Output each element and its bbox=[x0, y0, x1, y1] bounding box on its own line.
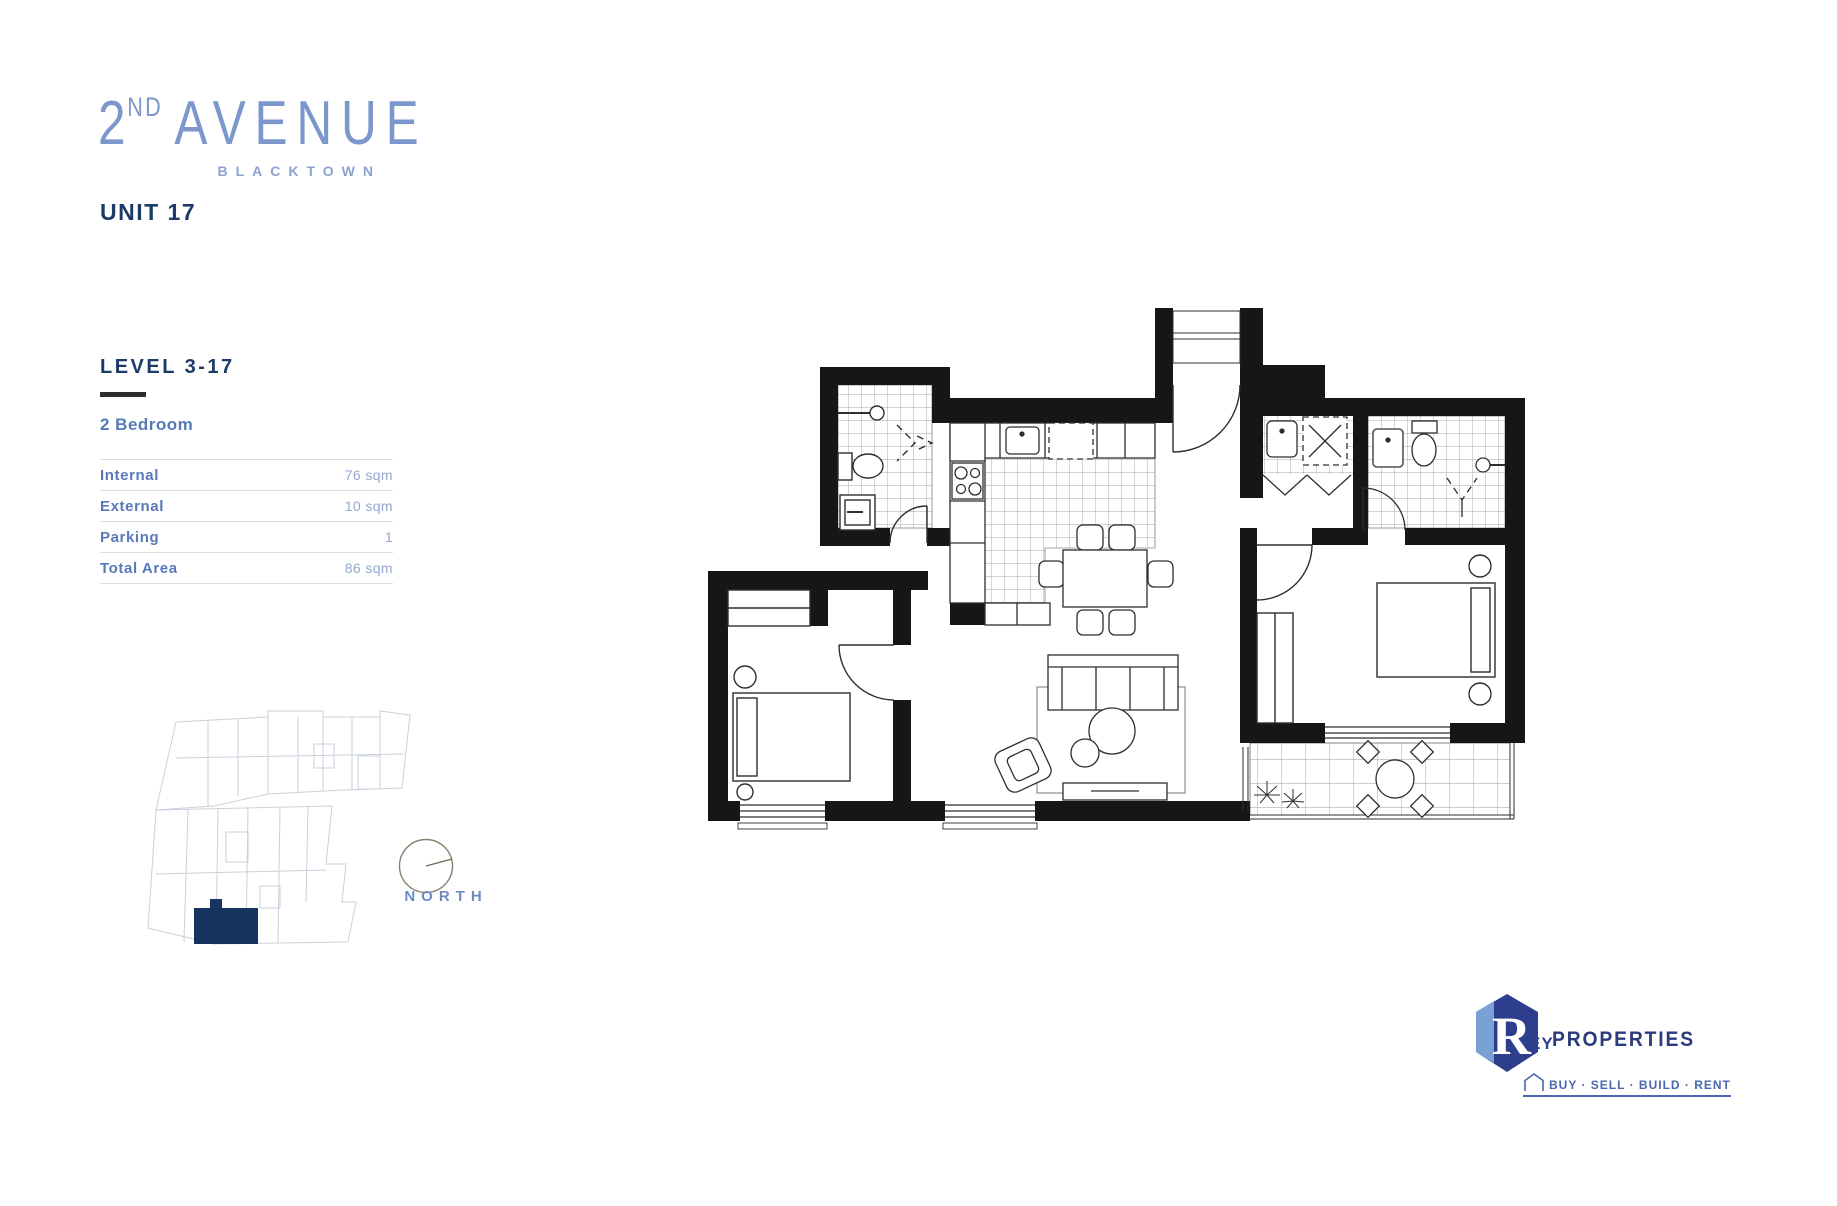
area-row-label: Internal bbox=[100, 467, 159, 484]
chair-icon bbox=[1077, 525, 1103, 550]
laundry-fixtures bbox=[1263, 417, 1351, 495]
project-logo: 2NDAVENUE bbox=[98, 88, 510, 159]
north-label: NORTH bbox=[398, 888, 494, 905]
level-heading: LEVEL 3-17 bbox=[100, 356, 235, 379]
project-logo-name: AVENUE bbox=[174, 89, 427, 158]
bedside-table-icon bbox=[737, 784, 753, 800]
agency-name-suffix: EY bbox=[1529, 1034, 1554, 1054]
area-row-value: 86 sqm bbox=[345, 560, 393, 576]
chair-icon bbox=[1148, 561, 1173, 587]
area-row-value: 10 sqm bbox=[345, 498, 393, 514]
building-key-plan-icon bbox=[118, 706, 430, 948]
agency-name: PROPERTIES bbox=[1552, 1028, 1695, 1052]
chair-icon bbox=[1109, 525, 1135, 550]
area-row-label: Total Area bbox=[100, 560, 178, 577]
heading-divider-bar bbox=[100, 392, 146, 397]
project-logo-ordinal: ND bbox=[127, 92, 163, 122]
area-row-value: 76 sqm bbox=[345, 467, 393, 483]
bedside-table-icon bbox=[1469, 683, 1491, 705]
project-logo-number: 2 bbox=[98, 89, 127, 158]
house-icon bbox=[1523, 1072, 1545, 1092]
agency-tagline-text: BUY · SELL · BUILD · RENT bbox=[1549, 1078, 1731, 1092]
highlighted-unit bbox=[194, 899, 258, 944]
chair-icon bbox=[1109, 610, 1135, 635]
agency-tagline: BUY · SELL · BUILD · RENT bbox=[1523, 1072, 1731, 1097]
svg-text:R: R bbox=[1492, 1006, 1532, 1066]
agency-logo: R EY PROPERTIES BUY · SELL · BUILD · REN… bbox=[1465, 990, 1680, 1110]
entry-door bbox=[1173, 311, 1240, 452]
outdoor-table-icon bbox=[1376, 760, 1414, 798]
floor-plan-drawing bbox=[705, 303, 1525, 843]
sofa-icon bbox=[1048, 655, 1178, 710]
bed-icon bbox=[1377, 583, 1495, 677]
table-row: Total Area 86 sqm bbox=[100, 552, 393, 584]
area-row-label: External bbox=[100, 498, 164, 515]
table-row: Internal 76 sqm bbox=[100, 459, 393, 490]
master-bedroom bbox=[1257, 545, 1495, 723]
area-row-value: 1 bbox=[385, 529, 393, 545]
project-location: BLACKTOWN bbox=[100, 163, 381, 179]
coffee-table-icon bbox=[1071, 739, 1099, 767]
area-row-label: Parking bbox=[100, 529, 159, 546]
chair-icon bbox=[1077, 610, 1103, 635]
bedroom-type: 2 Bedroom bbox=[100, 415, 193, 435]
bedside-table-icon bbox=[734, 666, 756, 688]
bedside-table-icon bbox=[1469, 555, 1491, 577]
area-table: Internal 76 sqm External 10 sqm Parking … bbox=[100, 459, 393, 584]
chair-icon bbox=[1039, 561, 1064, 587]
dining-table-icon bbox=[1063, 550, 1147, 607]
unit-title: UNIT 17 bbox=[100, 199, 196, 226]
table-row: Parking 1 bbox=[100, 521, 393, 552]
bed-icon bbox=[733, 693, 850, 781]
table-row: External 10 sqm bbox=[100, 490, 393, 521]
